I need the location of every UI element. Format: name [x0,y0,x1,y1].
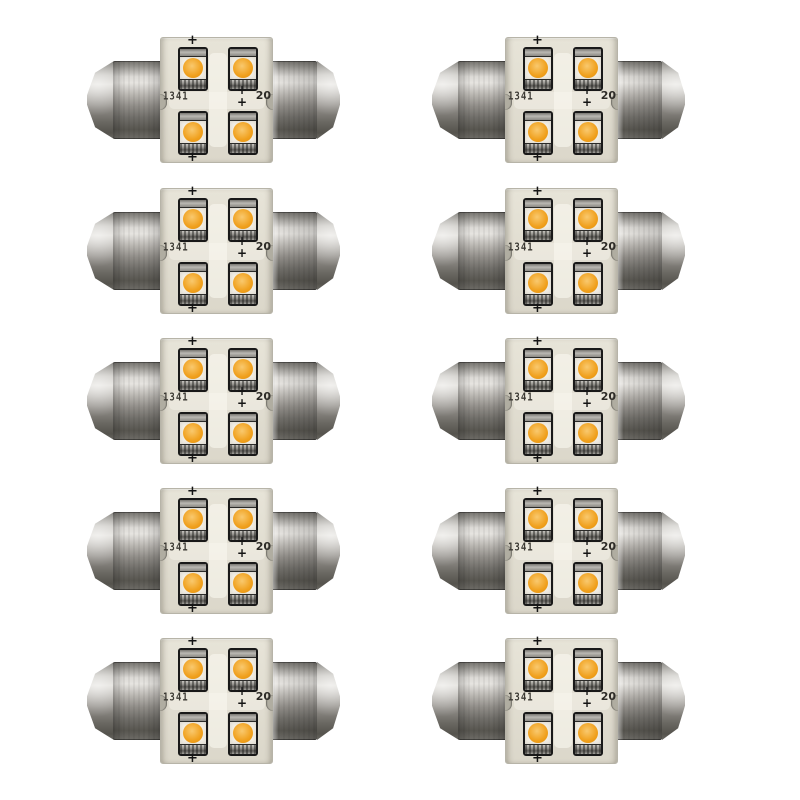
solder-pad-top [525,714,551,722]
end-cap-right [273,662,340,740]
led-emitter [183,723,203,743]
cap-barrel-left [113,662,160,740]
polarity-plus-top: + [187,36,198,46]
cap-barrel-right [618,662,662,740]
solder-pad-top [180,113,206,121]
end-cap-left [432,512,505,590]
polarity-plus-mid-upper: + [582,85,592,95]
cap-barrel-right [618,362,662,440]
polarity-plus-mid-upper: + [582,536,592,546]
led-ceramic [180,272,206,294]
led-ceramic [180,508,206,530]
cap-barrel-left [113,362,160,440]
solder-pad-top [230,264,256,272]
led-chip-bottom-left [178,412,208,456]
polarity-plus-mid-lower: + [237,248,247,258]
led-ceramic [575,422,601,444]
led-festoon-bulb: + + + + 1341 20 [432,338,685,464]
led-chip-bottom-right [228,111,258,155]
cap-cone-left [432,61,459,139]
pcb: + + + + 1341 20 [160,188,273,314]
led-emitter [528,659,548,679]
solder-pad-bottom [525,680,551,690]
led-emitter [233,723,253,743]
end-cap-right [273,61,340,139]
solder-pad-top [575,350,601,358]
solder-pad-top [180,200,206,208]
led-ceramic [575,508,601,530]
led-emitter [183,209,203,229]
solder-pad-top [180,714,206,722]
led-chip-bottom-right [573,712,603,756]
pcb-marking-right: 20 [601,690,616,703]
solder-pad-top [575,564,601,572]
polarity-plus-mid-lower: + [582,248,592,258]
cap-barrel-left [458,662,505,740]
cap-cone-right [317,362,340,440]
cap-cone-right [317,61,340,139]
led-emitter [578,659,598,679]
cap-cone-right [662,212,685,290]
led-ceramic [525,121,551,143]
solder-pad-top [180,650,206,658]
pcb-marking-date-code: 1341 [508,392,534,404]
pcb: + + + + 1341 20 [160,638,273,764]
led-emitter [528,273,548,293]
polarity-plus-bottom: + [532,604,543,614]
polarity-plus-mid-upper: + [582,236,592,246]
solder-pad-top [575,264,601,272]
polarity-plus-mid-lower: + [582,698,592,708]
led-ceramic [230,208,256,230]
led-ceramic [180,121,206,143]
led-emitter [233,209,253,229]
polarity-plus-bottom: + [532,304,543,314]
end-cap-right [618,512,685,590]
led-emitter [183,273,203,293]
pcb-marking-right: 20 [601,540,616,553]
led-emitter [578,423,598,443]
cap-barrel-right [273,61,317,139]
polarity-plus-bottom: + [187,304,198,314]
led-ceramic [180,722,206,744]
led-emitter [528,723,548,743]
pcb-marking-right: 20 [256,390,271,403]
cap-barrel-left [458,61,505,139]
solder-pad-top [575,414,601,422]
led-emitter [233,359,253,379]
led-emitter [528,573,548,593]
solder-pad-top [230,714,256,722]
solder-pad-bottom [180,79,206,89]
led-emitter [528,209,548,229]
solder-pad-top [575,49,601,57]
pcb-marking-right: 20 [256,540,271,553]
polarity-plus-top: + [532,637,543,647]
led-ceramic [230,572,256,594]
led-emitter [528,359,548,379]
solder-pad-top [230,500,256,508]
led-chip-bottom-left [178,562,208,606]
solder-pad-top [180,564,206,572]
led-festoon-bulb: + + + + 1341 20 [432,188,685,314]
polarity-plus-bottom: + [187,754,198,764]
pcb: + + + + 1341 20 [160,37,273,163]
led-ceramic [525,658,551,680]
led-ceramic [230,658,256,680]
led-emitter [183,359,203,379]
led-festoon-bulb: + + + + 1341 20 [432,638,685,764]
solder-pad-top [525,200,551,208]
cap-cone-right [662,512,685,590]
pcb: + + + + 1341 20 [505,338,618,464]
solder-pad-top [525,564,551,572]
led-chip-top-left [178,648,208,692]
led-chip-top-left [523,198,553,242]
led-festoon-bulb: + + + + 1341 20 [432,37,685,163]
solder-pad-bottom [575,594,601,604]
pcb-marking-date-code: 1341 [163,242,189,254]
led-emitter [183,659,203,679]
polarity-plus-top: + [532,36,543,46]
end-cap-left [87,662,160,740]
end-cap-left [87,212,160,290]
led-chip-bottom-left [523,111,553,155]
solder-pad-bottom [525,230,551,240]
led-ceramic [525,508,551,530]
pcb-marking-right: 20 [601,240,616,253]
led-ceramic [525,208,551,230]
led-chip-bottom-right [573,412,603,456]
led-festoon-bulb: + + + + 1341 20 [87,188,340,314]
solder-pad-bottom [180,530,206,540]
end-cap-right [273,512,340,590]
solder-pad-top [575,113,601,121]
pcb-marking-date-code: 1341 [163,542,189,554]
led-chip-top-left [523,348,553,392]
cap-cone-right [662,662,685,740]
solder-pad-bottom [230,744,256,754]
polarity-plus-bottom: + [532,754,543,764]
cap-barrel-right [273,662,317,740]
led-ceramic [575,658,601,680]
polarity-plus-mid-upper: + [237,236,247,246]
led-chip-bottom-right [228,262,258,306]
led-emitter [578,359,598,379]
solder-pad-top [180,350,206,358]
solder-pad-top [180,264,206,272]
polarity-plus-bottom: + [532,454,543,464]
cap-barrel-right [618,61,662,139]
pcb-marking-date-code: 1341 [508,242,534,254]
solder-pad-top [230,49,256,57]
polarity-plus-mid-upper: + [237,85,247,95]
cap-cone-right [317,512,340,590]
led-emitter [233,659,253,679]
cap-cone-left [432,362,459,440]
polarity-plus-top: + [532,187,543,197]
led-chip-bottom-right [573,262,603,306]
led-ceramic [230,508,256,530]
led-ceramic [180,658,206,680]
solder-pad-bottom [525,380,551,390]
led-emitter [578,723,598,743]
led-emitter [233,122,253,142]
led-ceramic [525,358,551,380]
led-ceramic [525,572,551,594]
cap-cone-left [87,212,114,290]
led-ceramic [525,57,551,79]
led-ceramic [180,208,206,230]
polarity-plus-mid-lower: + [237,97,247,107]
solder-pad-top [230,564,256,572]
polarity-plus-top: + [532,487,543,497]
led-chip-top-left [523,648,553,692]
cap-barrel-left [458,212,505,290]
solder-pad-top [575,650,601,658]
product-photo: + + + + 1341 20 [0,0,800,800]
end-cap-left [87,512,160,590]
led-chip-bottom-left [523,712,553,756]
led-emitter [183,122,203,142]
led-chip-bottom-left [523,262,553,306]
led-chip-bottom-left [523,562,553,606]
pcb: + + + + 1341 20 [505,638,618,764]
end-cap-right [618,362,685,440]
led-emitter [528,423,548,443]
led-chip-bottom-left [178,262,208,306]
solder-pad-bottom [230,594,256,604]
led-emitter [233,273,253,293]
solder-pad-top [575,200,601,208]
led-ceramic [180,422,206,444]
led-emitter [528,122,548,142]
led-emitter [233,573,253,593]
polarity-plus-mid-lower: + [237,548,247,558]
cap-barrel-right [618,212,662,290]
led-festoon-bulb: + + + + 1341 20 [87,638,340,764]
led-festoon-bulb: + + + + 1341 20 [87,37,340,163]
led-ceramic [575,57,601,79]
cap-barrel-right [273,362,317,440]
solder-pad-bottom [575,294,601,304]
led-ceramic [525,422,551,444]
cap-barrel-right [618,512,662,590]
led-festoon-bulb: + + + + 1341 20 [87,488,340,614]
polarity-plus-mid-lower: + [237,698,247,708]
cap-cone-left [87,662,114,740]
polarity-plus-mid-upper: + [237,686,247,696]
solder-pad-bottom [180,380,206,390]
led-emitter [183,423,203,443]
solder-pad-top [180,414,206,422]
solder-pad-bottom [230,444,256,454]
pcb: + + + + 1341 20 [505,488,618,614]
polarity-plus-bottom: + [187,604,198,614]
led-emitter [578,58,598,78]
solder-pad-top [525,49,551,57]
solder-pad-top [575,500,601,508]
polarity-plus-top: + [187,337,198,347]
polarity-plus-mid-lower: + [582,548,592,558]
polarity-plus-mid-lower: + [582,97,592,107]
polarity-plus-bottom: + [532,153,543,163]
led-emitter [233,58,253,78]
pcb: + + + + 1341 20 [505,37,618,163]
pcb-marking-date-code: 1341 [508,542,534,554]
end-cap-left [87,362,160,440]
led-chip-bottom-left [178,111,208,155]
cap-cone-right [662,362,685,440]
led-chip-top-left [178,498,208,542]
led-chip-top-left [178,47,208,91]
pcb-marking-right: 20 [256,89,271,102]
pcb: + + + + 1341 20 [505,188,618,314]
cap-cone-left [87,362,114,440]
solder-pad-top [525,650,551,658]
pcb-marking-right: 20 [601,390,616,403]
led-chip-top-left [178,198,208,242]
pcb: + + + + 1341 20 [160,338,273,464]
solder-pad-top [525,500,551,508]
led-ceramic [230,722,256,744]
end-cap-left [432,362,505,440]
polarity-plus-mid-lower: + [237,398,247,408]
end-cap-left [432,212,505,290]
led-chip-bottom-right [573,111,603,155]
solder-pad-bottom [575,444,601,454]
led-chip-bottom-left [523,412,553,456]
polarity-plus-top: + [187,487,198,497]
pcb-marking-right: 20 [601,89,616,102]
led-ceramic [180,57,206,79]
led-ceramic [230,272,256,294]
led-chip-bottom-right [573,562,603,606]
solder-pad-top [575,714,601,722]
solder-pad-top [230,414,256,422]
solder-pad-bottom [180,230,206,240]
solder-pad-bottom [525,79,551,89]
pcb-marking-right: 20 [256,690,271,703]
pcb-marking-date-code: 1341 [508,692,534,704]
solder-pad-bottom [180,680,206,690]
end-cap-right [273,362,340,440]
led-ceramic [575,358,601,380]
polarity-plus-mid-upper: + [582,386,592,396]
led-emitter [183,58,203,78]
led-chip-bottom-right [228,562,258,606]
cap-cone-right [662,61,685,139]
cap-barrel-left [113,212,160,290]
polarity-plus-mid-lower: + [582,398,592,408]
solder-pad-top [230,650,256,658]
led-ceramic [575,722,601,744]
solder-pad-bottom [525,530,551,540]
led-ceramic [575,272,601,294]
led-ceramic [575,572,601,594]
solder-pad-top [525,414,551,422]
polarity-plus-bottom: + [187,454,198,464]
led-emitter [578,209,598,229]
pcb-marking-date-code: 1341 [163,392,189,404]
led-ceramic [230,121,256,143]
cap-cone-right [317,662,340,740]
cap-cone-left [432,512,459,590]
cap-cone-right [317,212,340,290]
polarity-plus-top: + [187,637,198,647]
polarity-plus-bottom: + [187,153,198,163]
led-ceramic [180,572,206,594]
led-ceramic [525,272,551,294]
solder-pad-bottom [575,744,601,754]
pcb-marking-date-code: 1341 [163,91,189,103]
led-emitter [528,58,548,78]
led-emitter [578,273,598,293]
led-festoon-bulb: + + + + 1341 20 [87,338,340,464]
end-cap-left [432,662,505,740]
led-ceramic [230,358,256,380]
led-emitter [578,122,598,142]
led-festoon-bulb: + + + + 1341 20 [432,488,685,614]
solder-pad-bottom [230,294,256,304]
led-chip-top-left [523,47,553,91]
led-emitter [233,509,253,529]
solder-pad-bottom [230,143,256,153]
pcb-marking-right: 20 [256,240,271,253]
led-chip-bottom-left [178,712,208,756]
solder-pad-top [525,264,551,272]
solder-pad-top [180,500,206,508]
cap-barrel-left [458,362,505,440]
cap-barrel-left [113,61,160,139]
led-chip-bottom-right [228,712,258,756]
cap-barrel-left [458,512,505,590]
end-cap-left [432,61,505,139]
solder-pad-top [230,350,256,358]
cap-barrel-right [273,512,317,590]
cap-cone-left [87,61,114,139]
end-cap-right [618,212,685,290]
pcb-marking-date-code: 1341 [163,692,189,704]
end-cap-left [87,61,160,139]
solder-pad-top [230,200,256,208]
led-chip-bottom-right [228,412,258,456]
solder-pad-bottom [575,143,601,153]
led-chip-top-left [178,348,208,392]
led-ceramic [575,121,601,143]
polarity-plus-mid-upper: + [237,536,247,546]
led-ceramic [230,422,256,444]
polarity-plus-top: + [187,187,198,197]
led-ceramic [575,208,601,230]
led-emitter [183,573,203,593]
solder-pad-top [180,49,206,57]
led-emitter [578,509,598,529]
led-ceramic [180,358,206,380]
end-cap-right [273,212,340,290]
end-cap-right [618,662,685,740]
polarity-plus-mid-upper: + [237,386,247,396]
pcb: + + + + 1341 20 [160,488,273,614]
polarity-plus-top: + [532,337,543,347]
cap-barrel-left [113,512,160,590]
led-emitter [183,509,203,529]
led-emitter [578,573,598,593]
solder-pad-top [525,113,551,121]
polarity-plus-mid-upper: + [582,686,592,696]
pcb-marking-date-code: 1341 [508,91,534,103]
end-cap-right [618,61,685,139]
